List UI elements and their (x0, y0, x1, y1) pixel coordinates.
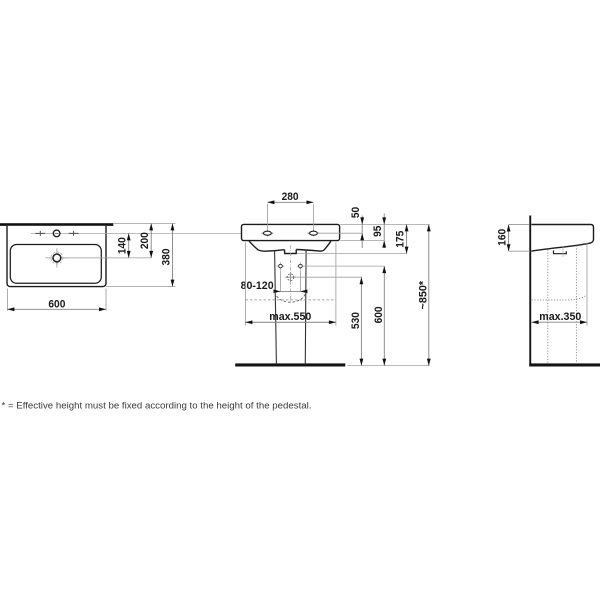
svg-text:max.550: max.550 (269, 311, 311, 323)
svg-text:~850*: ~850* (417, 280, 429, 309)
svg-text:140: 140 (117, 237, 129, 254)
svg-text:95: 95 (372, 226, 384, 237)
svg-text:160: 160 (496, 229, 508, 246)
svg-text:175: 175 (395, 231, 407, 248)
svg-text:280: 280 (282, 191, 299, 203)
svg-text:530: 530 (350, 312, 362, 329)
svg-text:380: 380 (161, 249, 173, 266)
svg-text:max.350: max.350 (539, 311, 581, 323)
svg-text:* = Effective height must be f: * = Effective height must be fixed accor… (2, 401, 312, 411)
svg-text:600: 600 (48, 298, 65, 310)
svg-text:200: 200 (139, 232, 151, 249)
svg-text:50: 50 (350, 207, 362, 218)
svg-text:600: 600 (373, 306, 385, 323)
